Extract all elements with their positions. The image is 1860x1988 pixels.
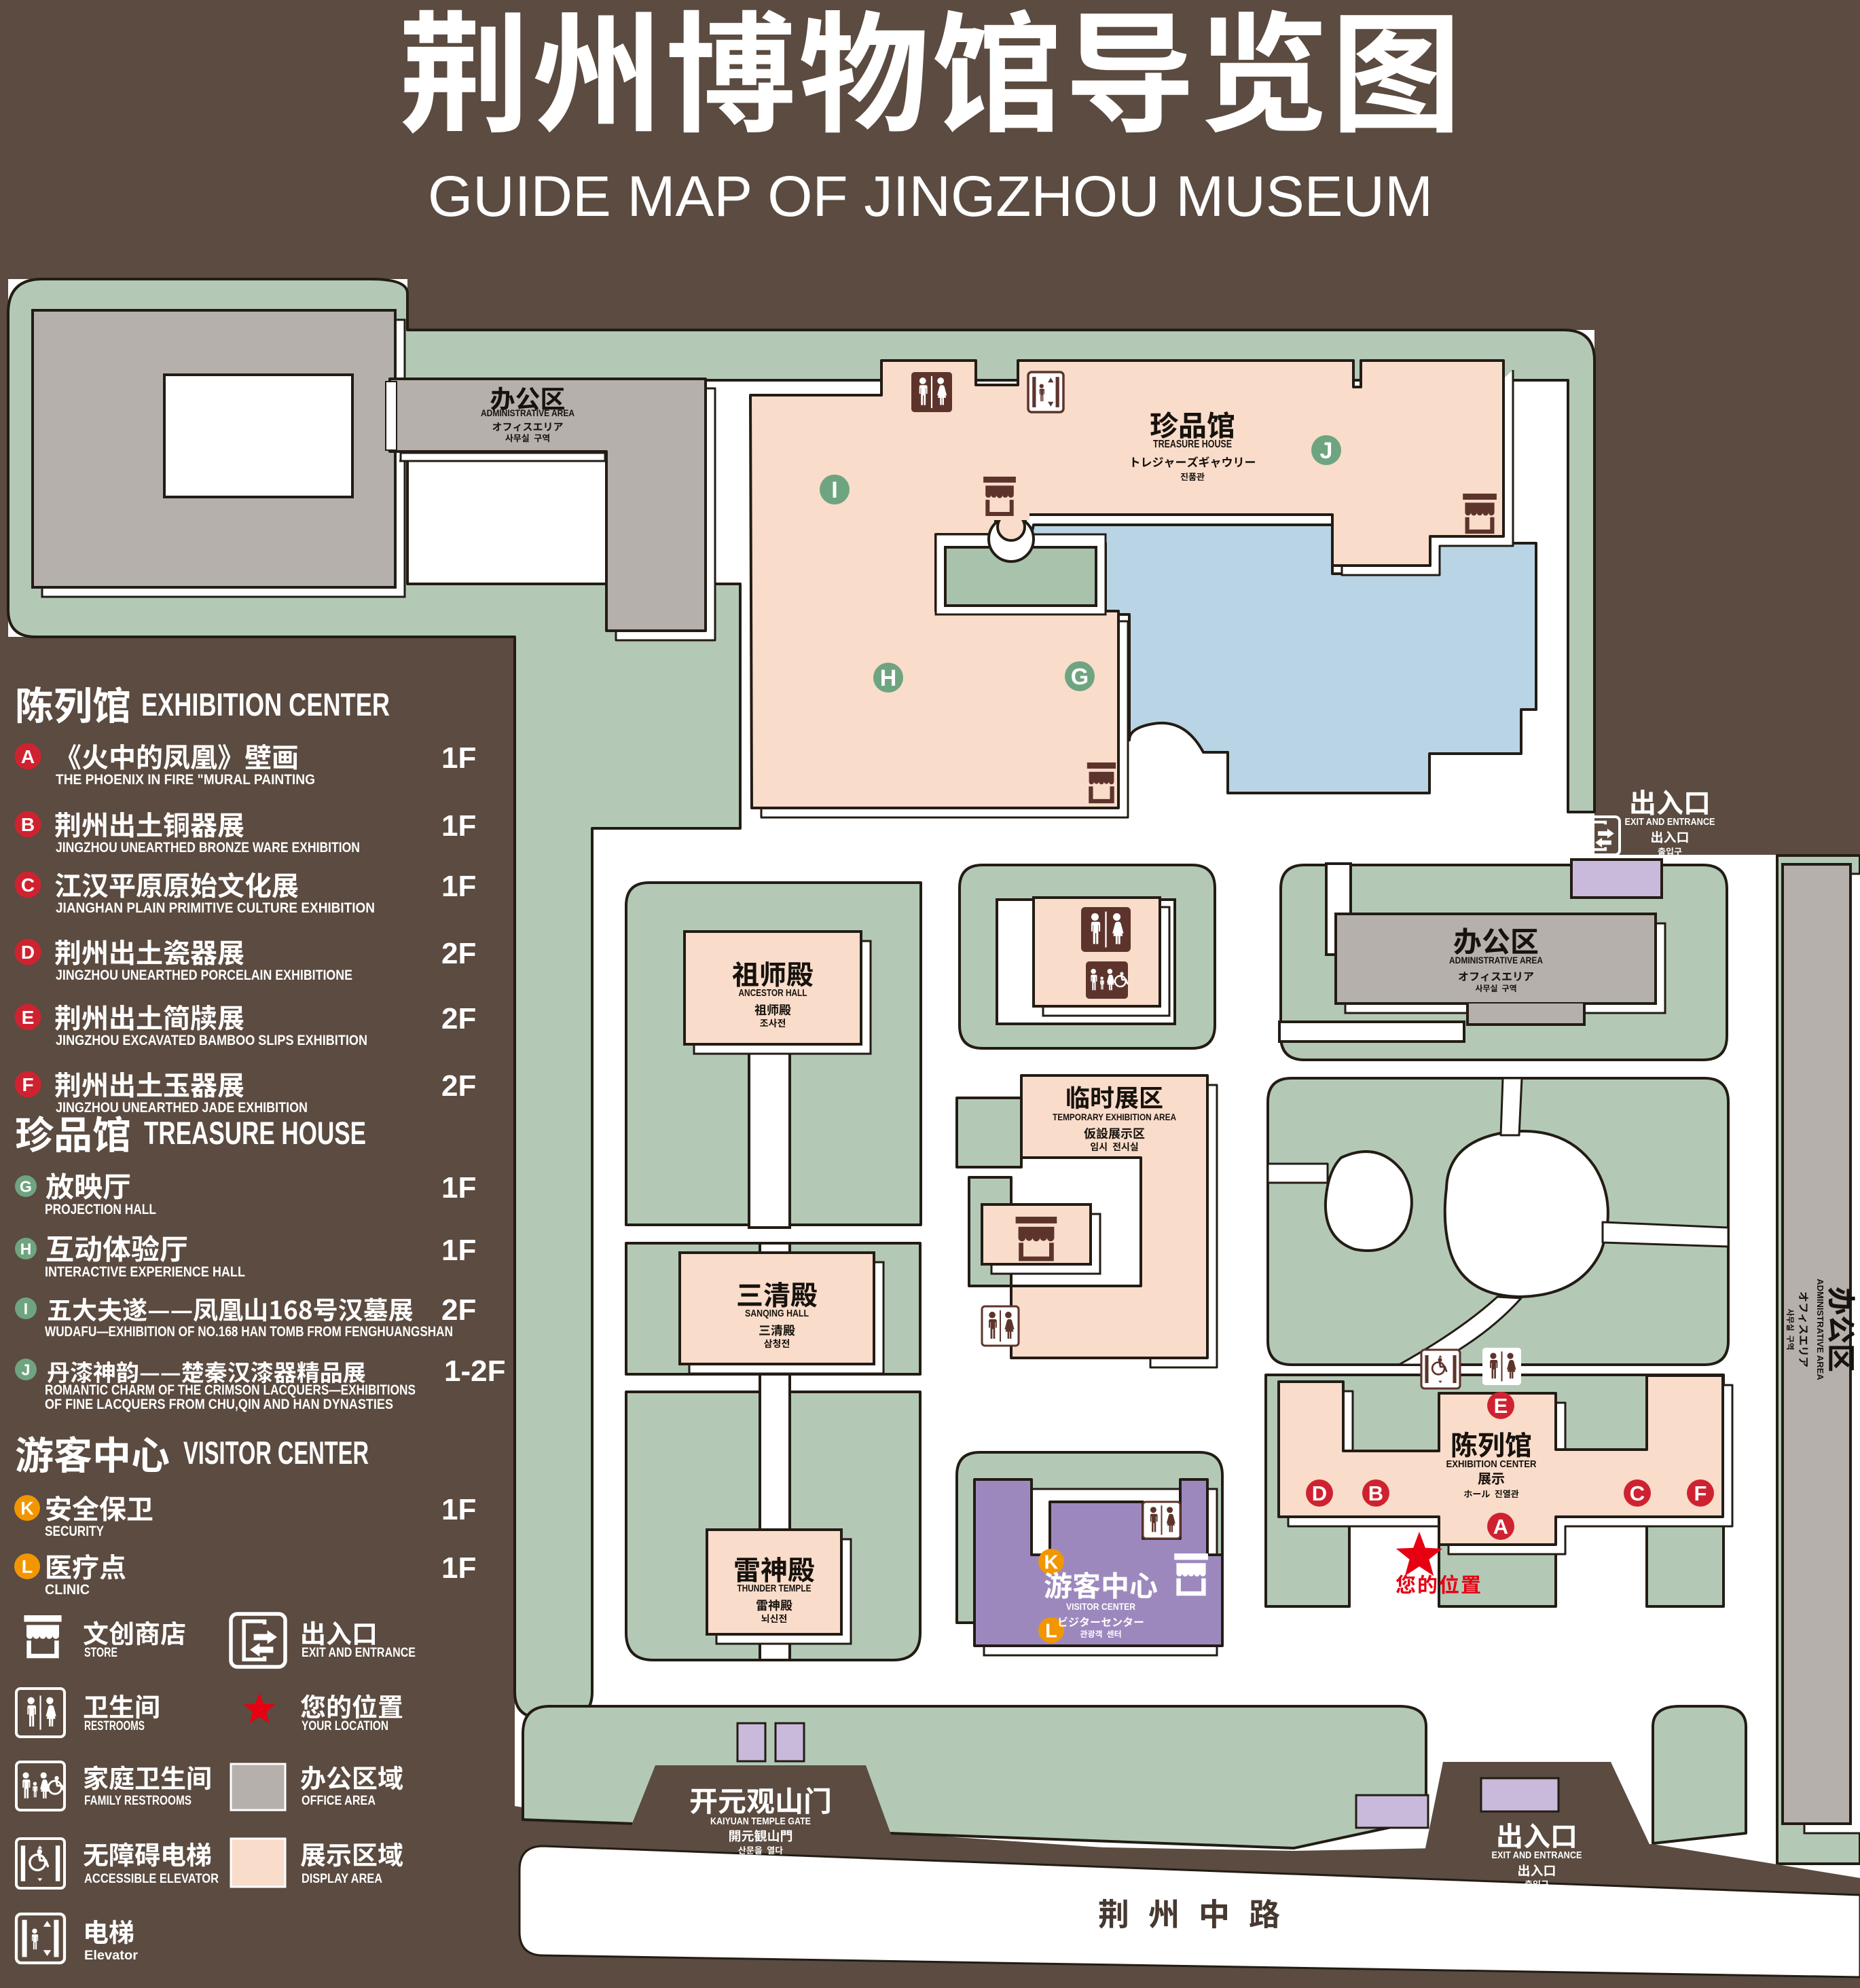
svg-text:EXHIBITION CENTER: EXHIBITION CENTER xyxy=(1446,1458,1537,1470)
svg-text:K: K xyxy=(20,1498,34,1519)
svg-text:THUNDER TEMPLE: THUNDER TEMPLE xyxy=(737,1583,812,1594)
svg-text:1F: 1F xyxy=(441,809,476,843)
svg-text:A: A xyxy=(21,746,35,767)
svg-text:VISITOR CENTER: VISITOR CENTER xyxy=(183,1435,369,1471)
svg-text:D: D xyxy=(1312,1481,1327,1505)
svg-text:OFFICE AREA: OFFICE AREA xyxy=(302,1794,376,1808)
svg-text:SANQING HALL: SANQING HALL xyxy=(745,1308,809,1319)
svg-text:DISPLAY AREA: DISPLAY AREA xyxy=(302,1872,382,1886)
svg-text:SECURITY: SECURITY xyxy=(45,1524,104,1539)
svg-text:I: I xyxy=(831,477,837,503)
svg-text:1F: 1F xyxy=(441,1551,476,1585)
svg-text:1F: 1F xyxy=(441,1234,476,1267)
svg-text:1F: 1F xyxy=(441,1171,476,1204)
svg-text:INTERACTIVE EXPERIENCE HALL: INTERACTIVE EXPERIENCE HALL xyxy=(45,1264,245,1280)
svg-text:1F: 1F xyxy=(441,741,476,775)
svg-text:EXIT AND ENTRANCE: EXIT AND ENTRANCE xyxy=(1625,816,1715,828)
svg-text:F: F xyxy=(22,1074,33,1095)
svg-text:2F: 2F xyxy=(441,937,476,970)
svg-text:G: G xyxy=(20,1177,32,1195)
svg-text:J: J xyxy=(1320,438,1333,464)
svg-text:PROJECTION HALL: PROJECTION HALL xyxy=(45,1202,156,1217)
svg-text:L: L xyxy=(22,1557,33,1577)
svg-text:E: E xyxy=(22,1007,35,1028)
svg-text:GUIDE MAP OF JINGZHOU MUSEUM: GUIDE MAP OF JINGZHOU MUSEUM xyxy=(428,164,1433,228)
svg-text:H: H xyxy=(20,1240,32,1257)
svg-text:EXIT AND ENTRANCE: EXIT AND ENTRANCE xyxy=(302,1646,416,1660)
svg-text:CLINIC: CLINIC xyxy=(45,1582,90,1598)
svg-text:ACCESSIBLE ELEVATOR: ACCESSIBLE ELEVATOR xyxy=(84,1872,219,1886)
svg-text:KAIYUAN TEMPLE GATE: KAIYUAN TEMPLE GATE xyxy=(710,1816,811,1827)
svg-text:2F: 2F xyxy=(441,1002,476,1035)
svg-text:EXHIBITION CENTER: EXHIBITION CENTER xyxy=(141,686,390,722)
svg-text:THE PHOENIX IN FIRE "MURAL PAI: THE PHOENIX IN FIRE "MURAL PAINTING xyxy=(56,772,315,788)
svg-text:JIANGHAN PLAIN PRIMITIVE CULTU: JIANGHAN PLAIN PRIMITIVE CULTURE EXHIBIT… xyxy=(56,900,375,916)
svg-text:L: L xyxy=(1045,1620,1057,1642)
svg-text:B: B xyxy=(21,814,35,835)
svg-text:F: F xyxy=(1694,1481,1707,1505)
svg-text:STORE: STORE xyxy=(84,1646,117,1660)
svg-text:ROMANTIC CHARM OF THE CRIMSON: ROMANTIC CHARM OF THE CRIMSON LACQUERS—E… xyxy=(45,1382,416,1398)
svg-text:RESTROOMS: RESTROOMS xyxy=(84,1719,145,1733)
svg-text:JINGZHOU UNEARTHED PORCELAIN E: JINGZHOU UNEARTHED PORCELAIN EXHIBITIONE xyxy=(56,968,352,983)
svg-text:2F: 2F xyxy=(441,1293,476,1327)
svg-text:H: H xyxy=(880,665,897,691)
svg-text:ADMINISTRATIVE AREA: ADMINISTRATIVE AREA xyxy=(481,407,575,418)
svg-text:JINGZHOU UNEARTHED BRONZE WARE: JINGZHOU UNEARTHED BRONZE WARE EXHIBITIO… xyxy=(56,840,360,855)
svg-text:E: E xyxy=(1494,1394,1508,1418)
svg-text:A: A xyxy=(1493,1515,1508,1539)
svg-text:ANCESTOR HALL: ANCESTOR HALL xyxy=(739,987,807,999)
svg-text:1-2F: 1-2F xyxy=(444,1355,505,1388)
svg-text:EXIT AND ENTRANCE: EXIT AND ENTRANCE xyxy=(1492,1849,1582,1861)
svg-text:YOUR LOCATION: YOUR LOCATION xyxy=(302,1719,388,1733)
svg-text:1F: 1F xyxy=(441,1493,476,1526)
svg-text:2F: 2F xyxy=(441,1069,476,1103)
svg-text:D: D xyxy=(21,942,35,963)
svg-text:JINGZHOU UNEARTHED JADE EXHIBI: JINGZHOU UNEARTHED JADE EXHIBITION xyxy=(56,1100,308,1116)
svg-text:TREASURE HOUSE: TREASURE HOUSE xyxy=(144,1115,366,1151)
svg-text:1F: 1F xyxy=(441,870,476,903)
svg-text:J: J xyxy=(22,1361,31,1378)
svg-text:C: C xyxy=(21,875,35,896)
svg-text:ADMINISTRATIVE AREA: ADMINISTRATIVE AREA xyxy=(1449,955,1543,965)
svg-text:OF FINE LACQUERS FROM CHU,QIN: OF FINE LACQUERS FROM CHU,QIN AND HAN DY… xyxy=(45,1397,393,1412)
svg-text:ADMINISTRATIVE AREA: ADMINISTRATIVE AREA xyxy=(1815,1278,1825,1380)
svg-text:I: I xyxy=(24,1300,28,1317)
svg-text:JINGZHOU EXCAVATED BAMBOO SLIP: JINGZHOU EXCAVATED BAMBOO SLIPS EXHIBITI… xyxy=(56,1033,367,1048)
svg-text:B: B xyxy=(1368,1481,1383,1505)
svg-text:TREASURE HOUSE: TREASURE HOUSE xyxy=(1153,439,1232,450)
svg-text:K: K xyxy=(1044,1551,1059,1573)
svg-text:FAMILY RESTROOMS: FAMILY RESTROOMS xyxy=(84,1794,192,1808)
svg-text:C: C xyxy=(1630,1481,1645,1505)
svg-text:G: G xyxy=(1071,664,1089,690)
svg-text:VISITOR CENTER: VISITOR CENTER xyxy=(1066,1601,1135,1612)
svg-text:TEMPORARY EXHIBITION AREA: TEMPORARY EXHIBITION AREA xyxy=(1053,1111,1176,1122)
svg-text:Elevator: Elevator xyxy=(84,1949,139,1963)
svg-text:WUDAFU—EXHIBITION OF NO.168 HA: WUDAFU—EXHIBITION OF NO.168 HAN TOMB FRO… xyxy=(45,1324,453,1340)
